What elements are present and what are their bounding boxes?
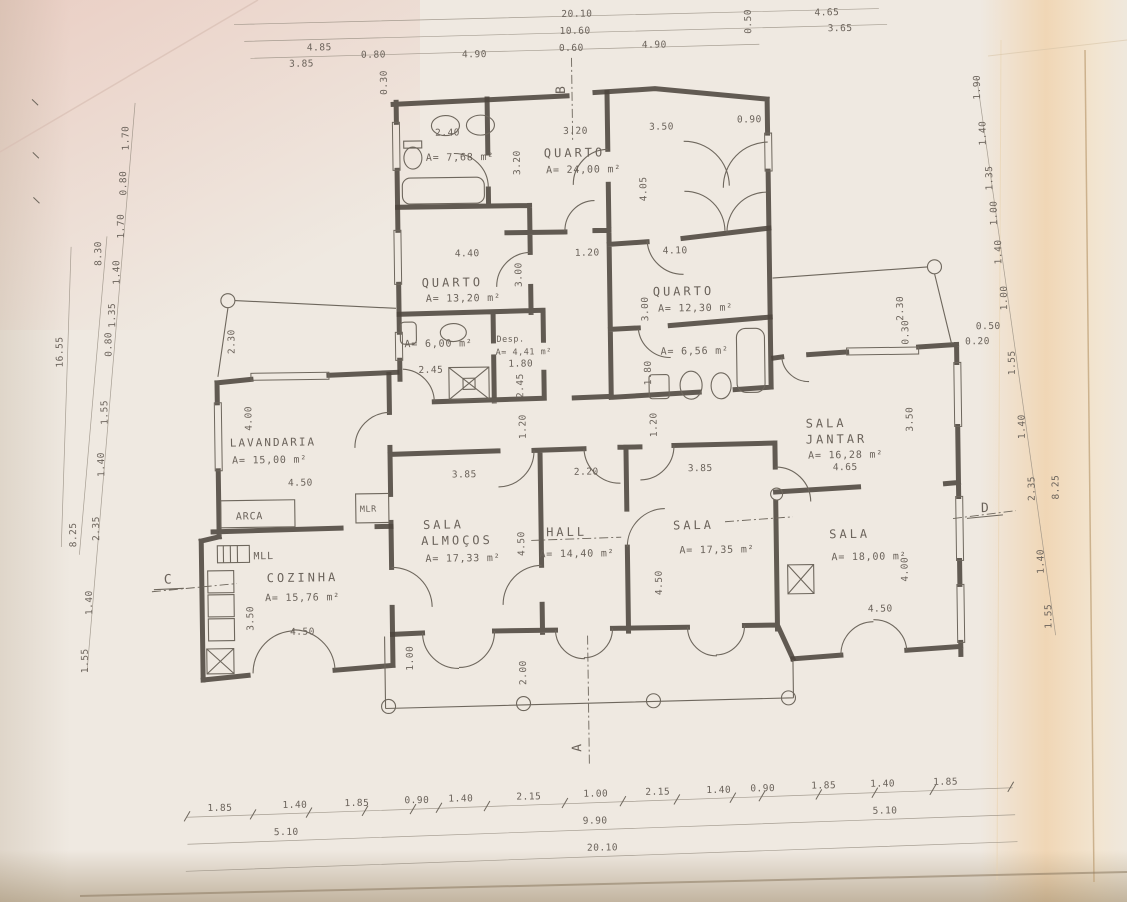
door-arc (775, 467, 810, 502)
dim-label: 10.60 (560, 26, 591, 37)
room-name: COZINHA (267, 570, 339, 585)
shower-cross (449, 367, 489, 400)
dim-label: 4.50 (654, 570, 665, 595)
fixture-label: ARCA (236, 511, 263, 522)
door-arc (684, 141, 730, 187)
dim-label: 2.00 (518, 660, 529, 685)
dim-label: 3.00 (513, 262, 524, 287)
window (954, 362, 962, 426)
door-arc (782, 357, 809, 382)
dim-label: 0.80 (118, 171, 129, 196)
dim-label: 8.25 (1050, 475, 1061, 500)
dim-label: 1.70 (116, 214, 127, 239)
dim-label: 3.20 (563, 126, 588, 137)
room-area: A= 24,00 m² (546, 164, 621, 176)
dim-label: 1.40 (706, 785, 731, 796)
dim-label: 1.40 (84, 590, 95, 615)
kitchen-counter-unit (208, 595, 234, 617)
room-name: QUARTO (544, 145, 606, 160)
room-name: JANTAR (806, 432, 868, 447)
floor-plan-scan: 20.10 10.60 4.85 3.85 0.80 4.90 0.60 4.9… (0, 0, 1127, 902)
dim-label: 1.00 (583, 788, 608, 799)
dim-label: 0.50 (976, 321, 1001, 332)
dim-label: 1.70 (120, 126, 131, 151)
dim-label: 0.80 (103, 332, 114, 357)
sink-fixture (466, 115, 494, 135)
porch-edge (385, 631, 794, 709)
room-area: A= 16,28 m² (808, 450, 883, 462)
door-arc (687, 625, 744, 656)
dim-label: 0.50 (743, 9, 754, 34)
dim-label: 0.90 (737, 114, 762, 125)
kitchen-counter-unit (208, 619, 234, 641)
left-edge-shade (0, 0, 70, 902)
dim-label: 4.10 (663, 245, 688, 256)
door-arc (555, 628, 612, 659)
dim-label: 2.15 (645, 787, 670, 798)
dim-label: 8.25 (68, 522, 79, 547)
column (927, 260, 941, 274)
door-arc (640, 445, 674, 479)
dim-label: 3.00 (640, 296, 651, 321)
dim-label: 3.85 (452, 469, 477, 480)
dim-label: 1.90 (972, 75, 983, 100)
dim-label: 2.15 (516, 791, 541, 802)
fixture-label: MLL (253, 551, 274, 562)
window (251, 372, 329, 380)
dim-label: 0.30 (379, 70, 390, 95)
dim-label: 1.80 (508, 358, 533, 369)
bathtub-fixture (736, 328, 765, 392)
door-arc (840, 619, 906, 655)
section-letter-a: A (570, 744, 585, 752)
section-line-a (588, 636, 590, 764)
dim-label: 1.40 (111, 260, 122, 285)
window (765, 133, 773, 171)
window (847, 347, 919, 355)
column (381, 699, 395, 713)
room-area: A= 7,68 m² (426, 152, 494, 164)
dim-label: 0.30 (900, 320, 911, 345)
room-area: A= 15,76 m² (265, 592, 340, 604)
section-letter-b: B (554, 86, 569, 94)
column (516, 696, 530, 710)
dim-label: 20.10 (561, 9, 592, 20)
room-area: A= 17,35 m² (679, 544, 754, 556)
room-name: SALA (829, 527, 870, 542)
dim-label: 3.50 (904, 407, 915, 432)
dim-label: 1.00 (405, 646, 416, 671)
window (956, 496, 964, 560)
dim-label: 2.45 (418, 365, 443, 376)
dim-label: 3.85 (289, 58, 314, 69)
bidet-fixture (711, 373, 731, 399)
room-area: A= 12,30 m² (658, 303, 733, 315)
dim-label: 20.10 (587, 842, 618, 853)
dim-label: 1.35 (107, 303, 118, 328)
door-arc (392, 567, 433, 608)
section-letter-c: C (164, 572, 172, 587)
dim-label: 3.85 (688, 463, 713, 474)
room-name: ALMOÇOS (421, 533, 493, 548)
dim-label: 1.85 (811, 780, 836, 791)
dim-label: 1.20 (648, 412, 659, 437)
dim-label: 16.55 (54, 336, 65, 367)
dim-label: 8.30 (93, 241, 104, 266)
room-name: HALL (546, 525, 587, 540)
room-area: A= 13,20 m² (426, 293, 501, 305)
room-area: A= 15,00 m² (232, 455, 307, 467)
fireplace-cross (788, 565, 814, 594)
door-arc (503, 565, 543, 605)
dim-label: 1.55 (80, 648, 91, 673)
dim-label: 1.40 (993, 239, 1004, 264)
dim-label: 1.40 (96, 452, 107, 477)
door-arc (498, 450, 534, 486)
fixture-label: MLR (360, 505, 377, 515)
door-arc (354, 412, 389, 447)
dim-label: 1.55 (1007, 350, 1018, 375)
room-name: SALA (673, 518, 714, 533)
dim-label: 1.40 (282, 800, 307, 811)
dim-label: 1.40 (870, 778, 895, 789)
dim-label: 1.40 (448, 793, 473, 804)
room-area: A= 4,41 m² (496, 347, 552, 358)
heater-cross (207, 649, 234, 674)
dim-label: 3.20 (512, 150, 523, 175)
room-area: A= 14,40 m² (539, 548, 614, 560)
kitchen-counter-unit (208, 571, 234, 593)
dim-label: 1.00 (999, 285, 1010, 310)
dim-label: 1.85 (344, 798, 369, 809)
dim-label: 1.40 (1017, 414, 1028, 439)
room-name: QUARTO (422, 275, 484, 290)
dim-label: 0.60 (559, 43, 584, 54)
dim-label: 3.65 (828, 23, 853, 34)
room-area: A= 18,00 m² (831, 551, 906, 563)
dim-label: 1.55 (1043, 604, 1054, 629)
room-area: A= 17,33 m² (425, 553, 500, 565)
dim-label: 4.50 (288, 477, 313, 488)
dim-label: 1.85 (933, 777, 958, 788)
door-arc (627, 509, 666, 548)
mll-hatch (223, 546, 237, 563)
mll-counter (217, 545, 249, 562)
dim-label: 1.40 (1035, 549, 1046, 574)
dim-label: 0.90 (750, 783, 775, 794)
dim-label: 0.80 (361, 49, 386, 60)
room-name: SALA (423, 517, 464, 532)
window (395, 332, 402, 360)
window (957, 584, 965, 642)
dim-label: 1.35 (984, 165, 995, 190)
dim-label: 2.45 (515, 373, 526, 398)
dim-label: 4.65 (833, 462, 858, 473)
dim-label: 2.20 (574, 467, 599, 478)
window (214, 403, 222, 471)
dim-label: 4.85 (307, 42, 332, 53)
dim-label: 1.20 (575, 247, 600, 258)
dim-label: 5.10 (274, 827, 299, 838)
pergola-line (772, 267, 951, 346)
dim-label: 1.85 (207, 803, 232, 814)
right-page-curl-shade (980, 0, 1127, 902)
dim-label: 4.65 (814, 7, 839, 18)
dim-label: 5.10 (873, 805, 898, 816)
dim-label: 4.00 (243, 406, 254, 431)
dim-label: 4.50 (290, 626, 315, 637)
column (646, 694, 660, 708)
dim-label: 4.50 (868, 603, 893, 614)
dim-label: 2.40 (435, 127, 460, 138)
dim-label: 2.35 (91, 516, 102, 541)
dim-label: 4.05 (638, 176, 649, 201)
dim-label: 1.55 (99, 400, 110, 425)
room-area: A= 6,00 m² (404, 338, 472, 350)
sala-axis-line (725, 517, 793, 522)
dim-label: 2.30 (226, 329, 237, 354)
dim-label: 1.00 (989, 200, 1000, 225)
dim-label: 1.20 (517, 414, 528, 439)
dim-label: 3.50 (649, 121, 674, 132)
dim-label: 9.90 (583, 815, 608, 826)
dim-label: 4.90 (462, 49, 487, 60)
door-arc (684, 191, 725, 232)
door-arc (423, 631, 496, 669)
dim-label: 0.20 (965, 336, 990, 347)
dim-label: 4.90 (642, 40, 667, 51)
toilet-fixture (680, 371, 702, 399)
room-name: LAVANDARIA (230, 435, 316, 449)
dim-label: 2.30 (895, 296, 906, 321)
dim-label: 3.50 (245, 606, 256, 631)
section-letter-d: D (981, 501, 989, 516)
dim-label: 0.90 (404, 795, 429, 806)
dim-label: 2.35 (1026, 476, 1037, 501)
door-arc (565, 201, 595, 231)
marker-underline-c (154, 588, 184, 589)
dim-label: 1.80 (643, 360, 654, 385)
dim-label: 1.40 (977, 121, 988, 146)
room-name: QUARTO (653, 284, 715, 299)
room-name: SALA (806, 416, 847, 431)
dim-label: 4.40 (455, 248, 480, 259)
room-area: A= 6,56 m² (661, 346, 729, 358)
dim-label: 4.50 (516, 531, 527, 556)
room-name: Desp. (496, 335, 524, 345)
